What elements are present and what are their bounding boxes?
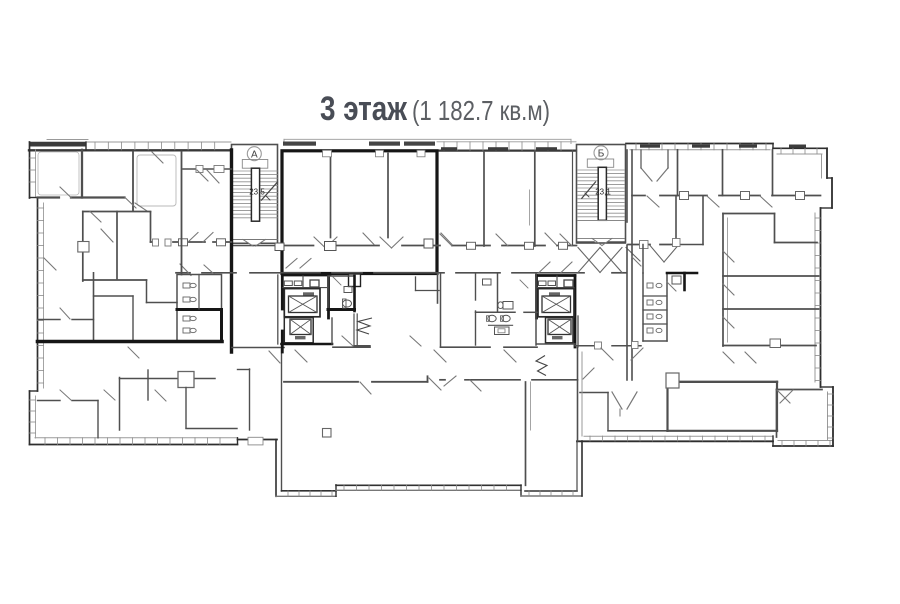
svg-text:23,1: 23,1 — [595, 188, 611, 197]
svg-text:А: А — [251, 149, 258, 160]
svg-text:23,5: 23,5 — [249, 188, 265, 197]
svg-text:(1 182.7 кв.м): (1 182.7 кв.м) — [412, 95, 550, 126]
svg-text:3 этаж: 3 этаж — [320, 90, 408, 128]
svg-text:Б: Б — [598, 148, 605, 159]
